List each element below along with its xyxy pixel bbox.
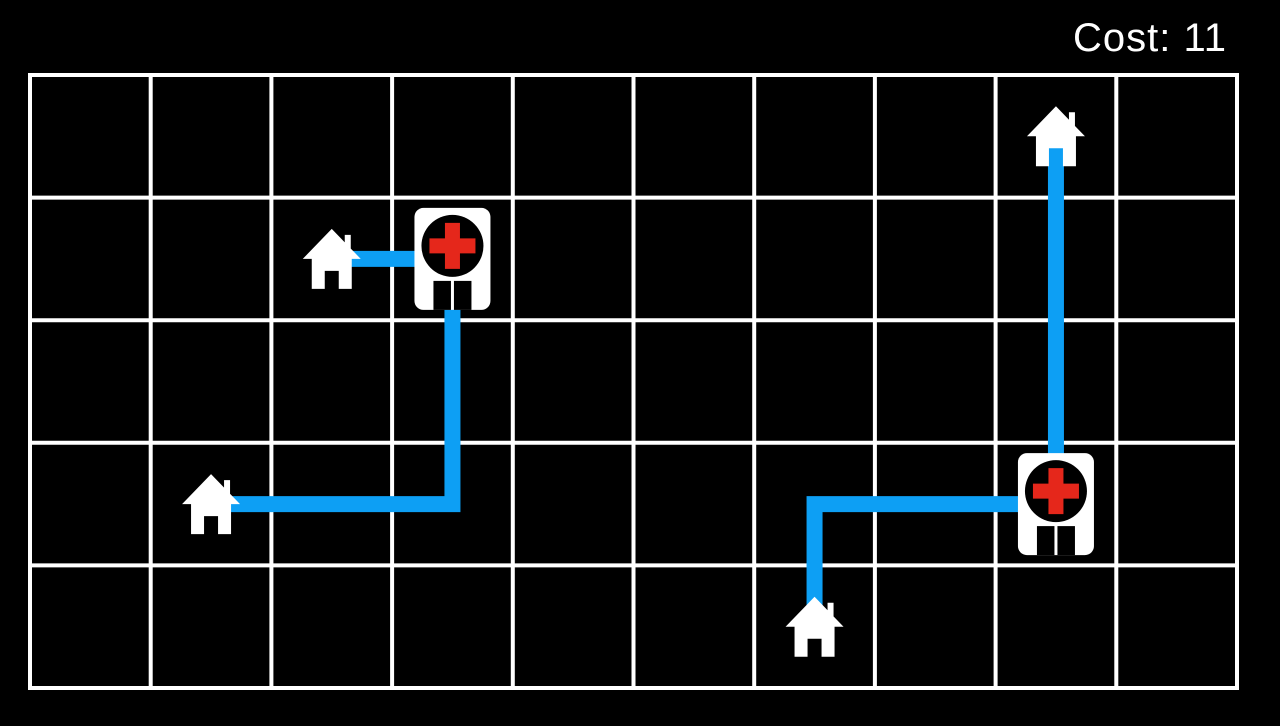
grid-board[interactable] bbox=[0, 0, 1280, 726]
hospital-2-icon[interactable] bbox=[1018, 453, 1094, 555]
house-4-icon[interactable] bbox=[786, 597, 844, 657]
entities-layer bbox=[182, 106, 1094, 656]
house-2-icon[interactable] bbox=[182, 474, 240, 534]
hospital-1-icon[interactable] bbox=[414, 208, 490, 310]
house-1-icon[interactable] bbox=[303, 229, 361, 289]
game-stage: Cost: 11 bbox=[0, 0, 1280, 726]
